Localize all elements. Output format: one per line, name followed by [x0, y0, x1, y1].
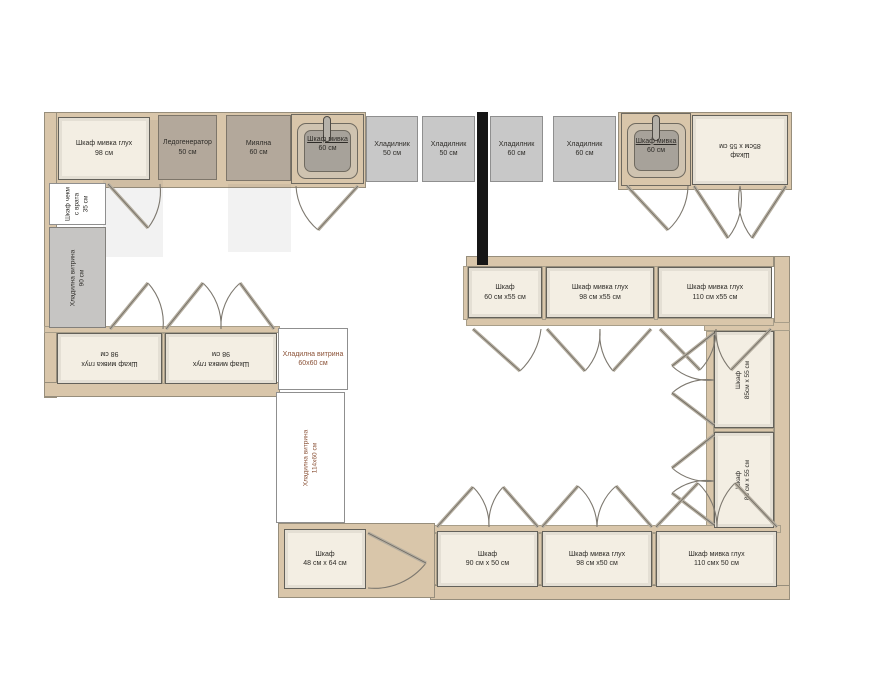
cabinet-label: Шкаф мивка глух — [688, 550, 744, 559]
cabinet-label: Шкаф — [735, 471, 744, 489]
cabinet-label: Шкаф чекм — [64, 187, 73, 221]
cabinet-right-85-2: Шкаф85 см х 55 см — [714, 432, 774, 528]
fridge-label: Хладилник — [499, 140, 535, 149]
cabinet-48x64: Шкаф48 см х 64 см — [284, 529, 366, 589]
kitchen-floor-plan: Шкаф мивка глух98 см Ледогенератор50 см … — [0, 0, 880, 700]
cabinet-island-98: Шкаф мивка глух98 см х55 см — [546, 267, 654, 318]
cabinet-label: Шкаф мивка глух — [81, 359, 137, 368]
fridge-label: Хладилник — [374, 140, 410, 149]
cabinet-size: 60 см х55 см — [484, 293, 526, 302]
vitrine-size: 90 см — [78, 269, 87, 286]
fridge-50-2: Хладилник50 см — [422, 116, 475, 182]
fridge-label: Хладилник — [431, 140, 467, 149]
rail-right-column — [706, 331, 714, 528]
cabinet-label: Шкаф мивка глух — [687, 283, 743, 292]
ice-maker: Ледогенератор50 см — [158, 115, 217, 180]
cabinet-right-85-1: Шкаф85см х 55 см — [714, 331, 774, 428]
cabinet-size: 98 см — [95, 149, 113, 158]
cabinet-label: Шкаф — [478, 550, 497, 559]
cabinet-size: 85 см х 55 см — [744, 460, 753, 500]
cabinet-size: 60 см — [318, 144, 336, 153]
cabinet-size: 110 см х55 см — [693, 293, 738, 302]
cabinet-label: Шкаф мивка глух — [569, 550, 625, 559]
cabinet-label: Шкаф — [730, 150, 749, 159]
appliance-size: 50 см — [178, 148, 196, 157]
cabinet-sink-98-top: Шкаф мивка глух98 см — [58, 117, 150, 180]
fridge-60-2: Хладилник60 см — [553, 116, 616, 182]
cabinet-island-110: Шкаф мивка глух110 см х55 см — [658, 267, 772, 318]
vitrine-label: Хладилна витрина — [69, 249, 78, 305]
wall-divider-bar — [477, 112, 488, 265]
door-shade-dishwasher — [228, 184, 291, 252]
vitrine-label: Хладилна витрина — [302, 429, 311, 485]
cabinet-island-60: Шкаф60 см х55 см — [468, 267, 542, 318]
vitrine-size: 114х60 см — [311, 442, 320, 472]
cabinet-label: Шкаф мивка глух — [76, 139, 132, 148]
dishwasher: Миялна60 см — [226, 115, 291, 181]
fridge-label: Хладилник — [567, 140, 603, 149]
cabinet-label: Шкаф мивка — [307, 135, 348, 144]
cabinet-size: 110 смх 50 см — [694, 559, 739, 568]
vitrine-size: 60х60 см — [298, 359, 327, 368]
cabinet-label: Шкаф мивка глух — [193, 359, 249, 368]
cabinet-sink-98-base-1: Шкаф мивка глух98 см — [57, 333, 162, 384]
cabinet-label: Шкаф — [315, 550, 334, 559]
cabinet-label: с врата — [73, 193, 82, 215]
fridge-size: 50 см — [439, 149, 457, 158]
fridge-size: 60 см — [507, 149, 525, 158]
vitrine-60x60: Хладилна витрина60х60 см — [278, 328, 348, 390]
cabinet-label: Шкаф мивка — [636, 137, 677, 146]
cabinet-size: 98 см х55 см — [579, 293, 621, 302]
cabinet-size: 85см х 55 см — [744, 360, 753, 399]
cabinet-size: 48 см х 64 см — [303, 559, 346, 568]
cabinet-bottom-98: Шкаф мивка глух98 см х50 см — [542, 531, 652, 587]
cabinet-size: 98 см х50 см — [576, 559, 618, 568]
rail-island-front — [466, 318, 774, 326]
cabinet-size: 90 см х 50 см — [466, 559, 509, 568]
cabinet-drawer-35: Шкаф чекмс врата35 см — [49, 183, 106, 225]
vitrine-114x60: Хладилна витрина114х60 см — [276, 392, 345, 523]
sink-cabinet-right-label-area: Шкаф мивка60 см — [623, 132, 689, 160]
cabinet-label: Шкаф — [495, 283, 514, 292]
wall-band-upper-left — [44, 382, 280, 397]
fridge-60-1: Хладилник60 см — [490, 116, 543, 182]
cabinet-bottom-110: Шкаф мивка глух110 смх 50 см — [656, 531, 777, 587]
fridge-50-1: Хладилник50 см — [366, 116, 418, 182]
sink-cabinet-left-label-area: Шкаф мивка60 см — [293, 130, 362, 158]
cabinet-sink-98-base-2: Шкаф мивка глух98 см — [165, 333, 277, 384]
wall-island-top — [466, 256, 774, 267]
cabinet-label: Шкаф — [735, 371, 744, 389]
appliance-label: Ледогенератор — [163, 138, 212, 147]
cabinet-size: 60 см — [647, 146, 665, 155]
appliance-label: Миялна — [246, 139, 271, 148]
appliance-size: 60 см — [249, 148, 267, 157]
cabinet-bottom-90: Шкаф90 см х 50 см — [437, 531, 538, 587]
cabinet-size: 98 см — [100, 349, 118, 358]
wall-band-bottom — [430, 585, 790, 600]
fridge-size: 50 см — [383, 149, 401, 158]
cabinet-label: Шкаф мивка глух — [572, 283, 628, 292]
cabinet-size: 98 см — [212, 349, 230, 358]
cabinet-size: 85см х 55 см — [719, 141, 761, 150]
cabinet-size: 35 см — [82, 196, 91, 213]
vitrine-label: Хладилна витрина — [283, 350, 344, 359]
cabinet-corner-85: Шкаф85см х 55 см — [692, 115, 788, 185]
fridge-size: 60 см — [575, 149, 593, 158]
fridge-vitrine-90: Хладилна витрина90 см — [49, 227, 106, 328]
